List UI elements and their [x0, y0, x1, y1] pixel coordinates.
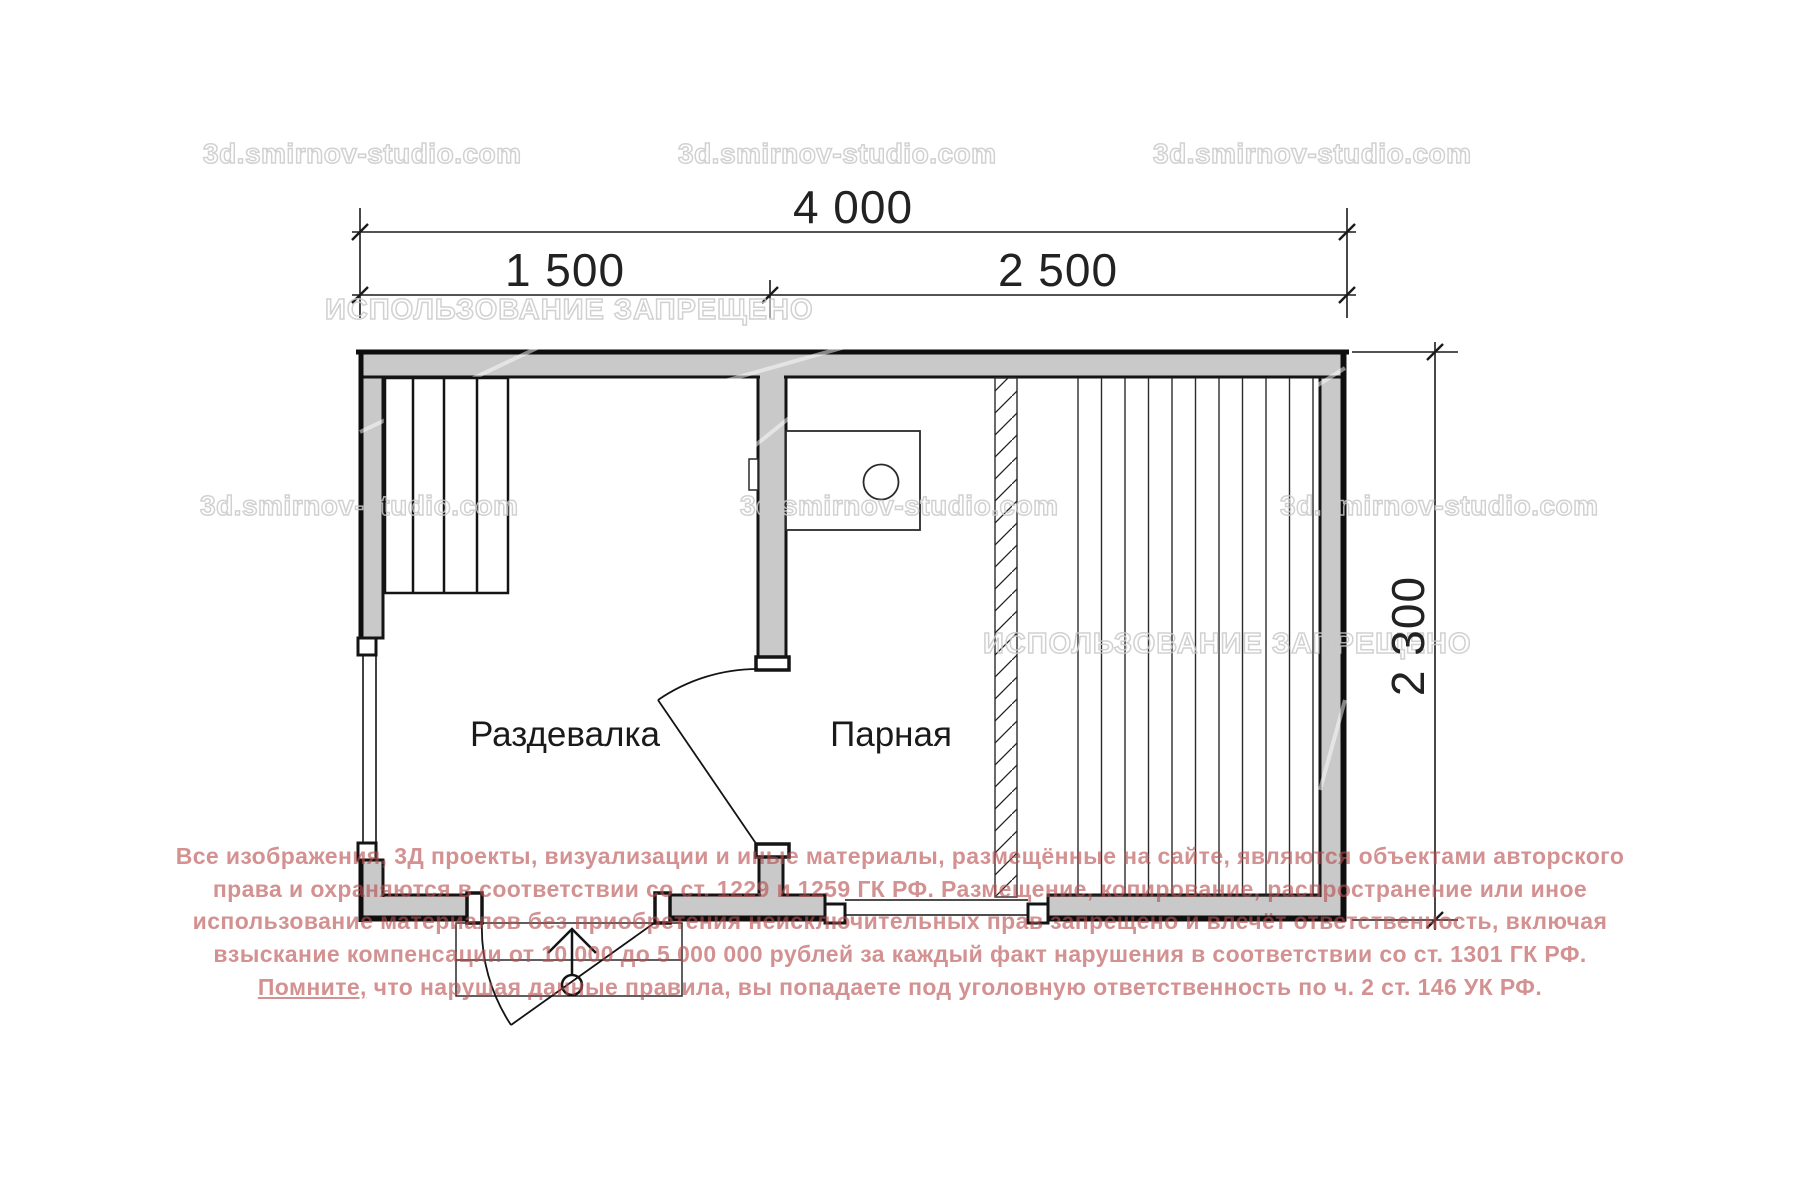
legal-text-line1: Все изображения, 3Д проекты, визуализаци…	[0, 843, 1800, 870]
wall-top	[360, 352, 1345, 377]
room-label-dressing: Раздевалка	[415, 715, 715, 755]
watermark-site: 3d.smirnov-studio.com	[203, 138, 522, 170]
interior-door-swing-arc	[658, 669, 758, 700]
watermark-site: 3d.smirnov-studio.com	[200, 490, 519, 522]
watermark-site: 3d.smirnov-studio.com	[1153, 138, 1472, 170]
dim-ticks	[352, 224, 1443, 928]
interior-door-jamb-top	[756, 657, 789, 670]
watermark-site: 3d.smirnov-studio.com	[740, 490, 1059, 522]
legal-text-line5-rest: что нарушая данные правила, вы попадаете…	[367, 974, 1542, 1000]
dim-total-width: 4 000	[753, 180, 953, 234]
bench-dressing-room	[385, 378, 508, 593]
watermark-forbidden: ИСПОЛЬЗОВАНИЕ ЗАПРЕЩЕНО	[325, 294, 814, 327]
watermark-site: 3d.smirnov-studio.com	[1280, 490, 1599, 522]
dim-right-section: 2 500	[958, 243, 1158, 297]
dim-depth: 2 300	[1383, 536, 1433, 736]
window-left-jamb-top	[358, 638, 376, 655]
window-left	[358, 638, 376, 860]
interior-door	[658, 657, 789, 857]
entrance-door-swing-arc	[482, 921, 511, 1025]
floor-plan-page: 3d.smirnov-studio.com 3d.smirnov-studio.…	[0, 0, 1800, 1200]
legal-text-line4: взыскание компенсации от 10 000 до 5 000…	[0, 941, 1800, 968]
legal-text-line5: Помните, что нарушая данные правила, вы …	[0, 974, 1800, 1001]
entrance-door-leaf	[511, 921, 657, 1025]
dim-left-section: 1 500	[465, 243, 665, 297]
legal-text-underlined: Помните,	[258, 974, 367, 1000]
legal-text-line2: права и охраняются в соответствии со ст.…	[0, 876, 1800, 903]
stove-feed-niche	[749, 459, 758, 490]
legal-text-line3: использование материалов без приобретени…	[0, 908, 1800, 935]
watermark-site: 3d.smirnov-studio.com	[678, 138, 997, 170]
room-label-steam: Парная	[791, 715, 991, 755]
